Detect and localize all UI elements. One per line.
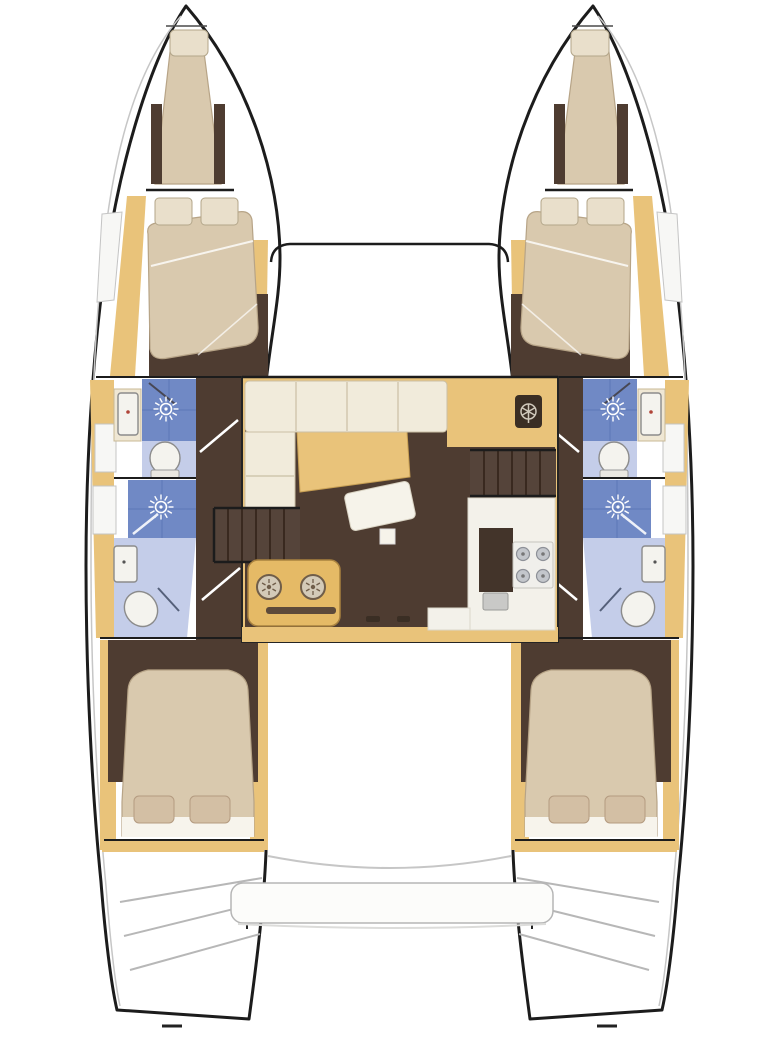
- stairs-to-starboard-hull: [470, 450, 556, 496]
- door-handle: [397, 616, 410, 622]
- stove-4-burner: [513, 542, 553, 588]
- galley-double-sink-unit: [248, 560, 340, 626]
- mast-foot: [380, 529, 395, 544]
- counter-cabinet: [479, 528, 513, 592]
- catamaran-floorplan-page: catamaran-layout-floorplan: [0, 0, 779, 1039]
- drawer-slot: [266, 607, 336, 614]
- stairs-to-port-hull: [214, 508, 300, 562]
- saloon: [214, 377, 558, 642]
- catamaran-floorplan: catamaran-layout-floorplan: [0, 0, 779, 1039]
- galley-sink: [483, 593, 508, 610]
- aft-bench: [231, 883, 553, 923]
- door-handle: [366, 616, 380, 622]
- sofa-top-row: [245, 381, 447, 432]
- nav-helm-seat: [515, 395, 542, 428]
- galley-counter: [428, 608, 470, 630]
